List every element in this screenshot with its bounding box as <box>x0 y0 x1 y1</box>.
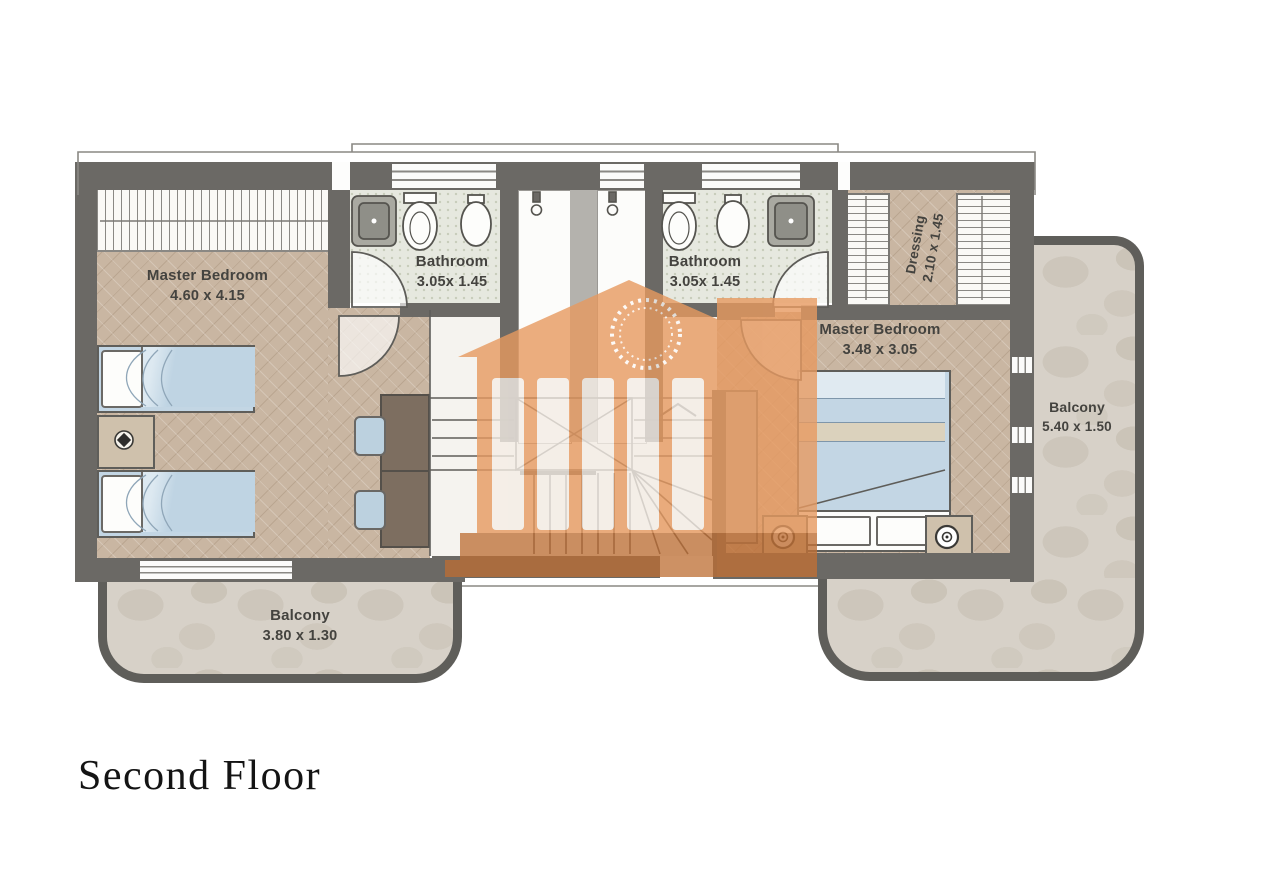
room-label-master-bedroom-right: Master Bedroom 3.48 x 3.05 <box>790 320 970 361</box>
room-dims: 5.40 x 1.50 <box>1042 419 1112 434</box>
room-name: Bathroom <box>416 253 488 270</box>
room-name: Balcony <box>270 607 330 624</box>
room-name: Bathroom <box>669 253 741 270</box>
room-dims: 3.48 x 3.05 <box>843 342 918 358</box>
room-label-master-bedroom-left: Master Bedroom 4.60 x 4.15 <box>90 266 325 307</box>
room-label-balcony-bottom-left: Balcony 3.80 x 1.30 <box>200 606 400 647</box>
room-dims: 3.80 x 1.30 <box>263 628 338 644</box>
room-dims: 4.60 x 4.15 <box>170 288 245 304</box>
room-name: Balcony <box>1049 399 1105 415</box>
room-dims: 3.05x 1.45 <box>417 274 488 290</box>
floor-plan: Master Bedroom 4.60 x 4.15 Bathroom 3.05… <box>0 0 1280 880</box>
logo-base <box>445 533 817 577</box>
room-label-bathroom-right: Bathroom 3.05x 1.45 <box>625 252 785 293</box>
page-title: Second Floor <box>78 752 321 800</box>
room-label-bathroom-left: Bathroom 3.05x 1.45 <box>372 252 532 293</box>
room-name: Master Bedroom <box>819 321 940 338</box>
room-dims: 3.05x 1.45 <box>670 274 741 290</box>
logo-columns <box>492 378 704 530</box>
developer-logo-watermark <box>0 0 1280 880</box>
room-name: Master Bedroom <box>147 267 268 284</box>
room-label-balcony-right: Balcony 5.40 x 1.50 <box>1014 398 1140 436</box>
